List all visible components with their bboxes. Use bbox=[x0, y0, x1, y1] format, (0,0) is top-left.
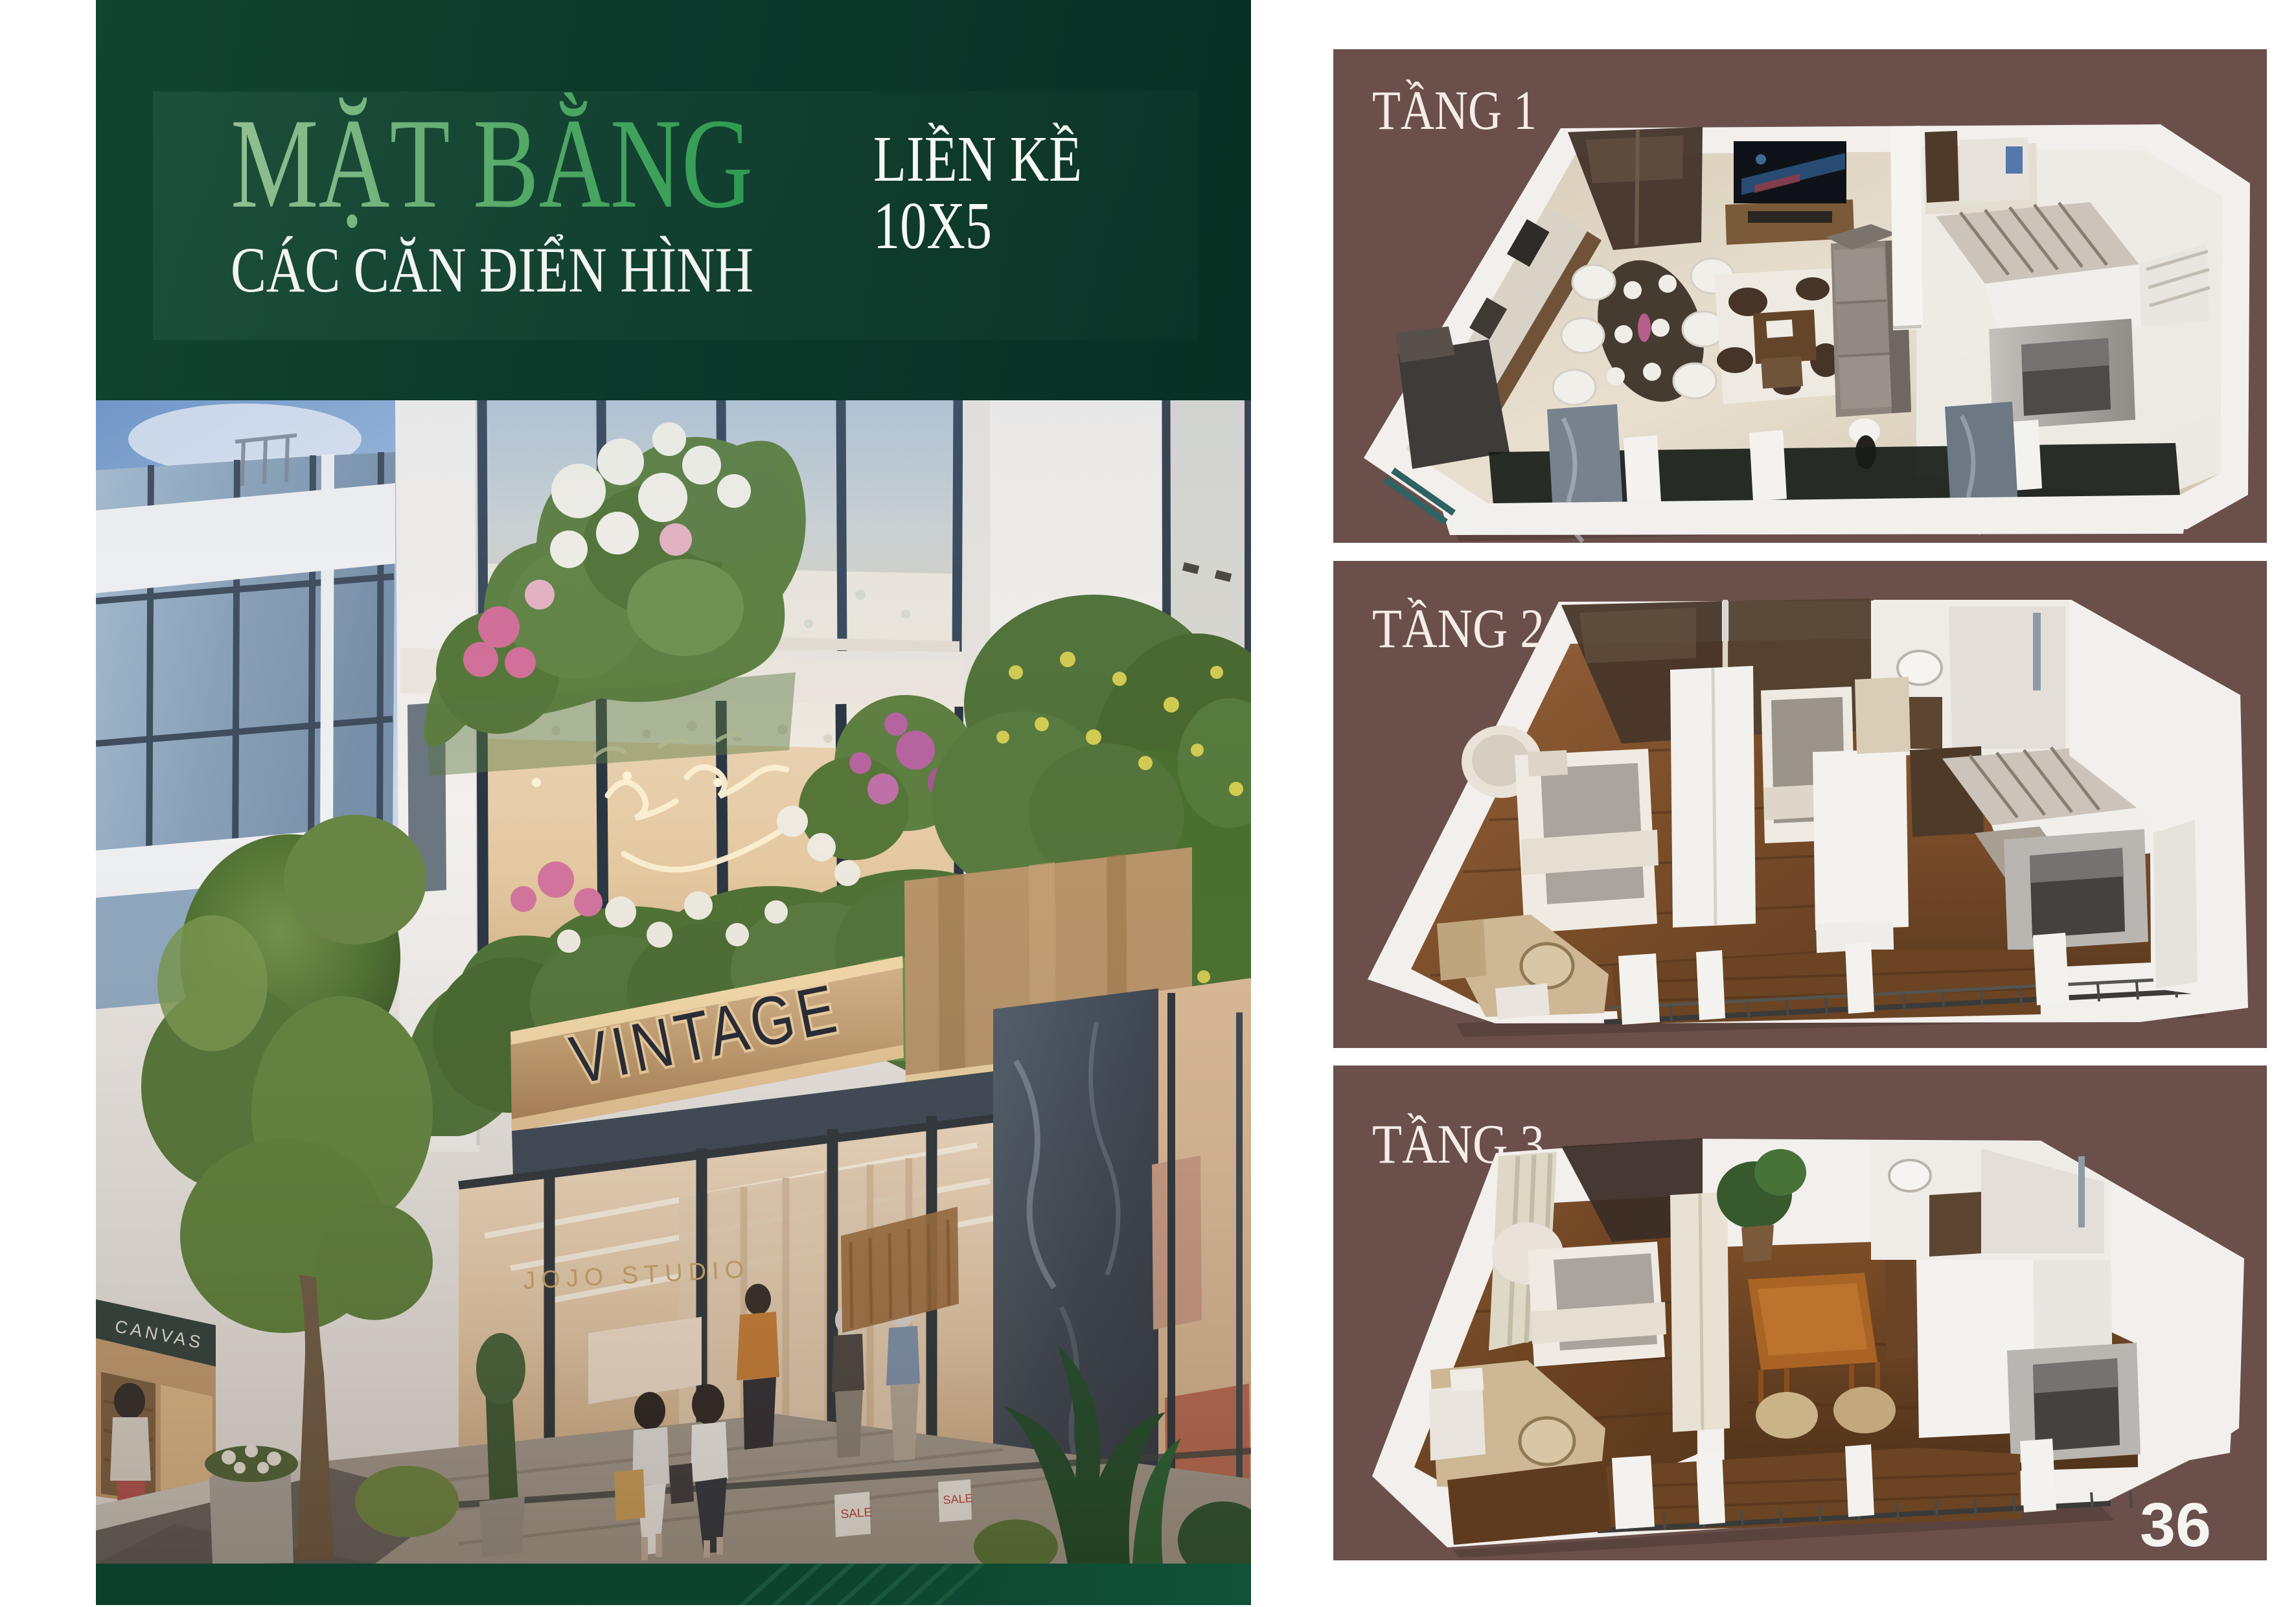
svg-text:CÁC CĂN ĐIỂN HÌNH: CÁC CĂN ĐIỂN HÌNH bbox=[231, 234, 753, 306]
svg-text:TẦNG 1: TẦNG 1 bbox=[1372, 79, 1537, 141]
svg-text:TẦNG 2: TẦNG 2 bbox=[1372, 597, 1544, 659]
svg-text:36: 36 bbox=[2140, 1490, 2211, 1560]
svg-text:MẶT BẰNG: MẶT BẰNG bbox=[231, 92, 753, 235]
svg-text:LIỀN KỀ: LIỀN KỀ bbox=[873, 122, 1082, 195]
svg-text:10X5: 10X5 bbox=[873, 188, 992, 263]
